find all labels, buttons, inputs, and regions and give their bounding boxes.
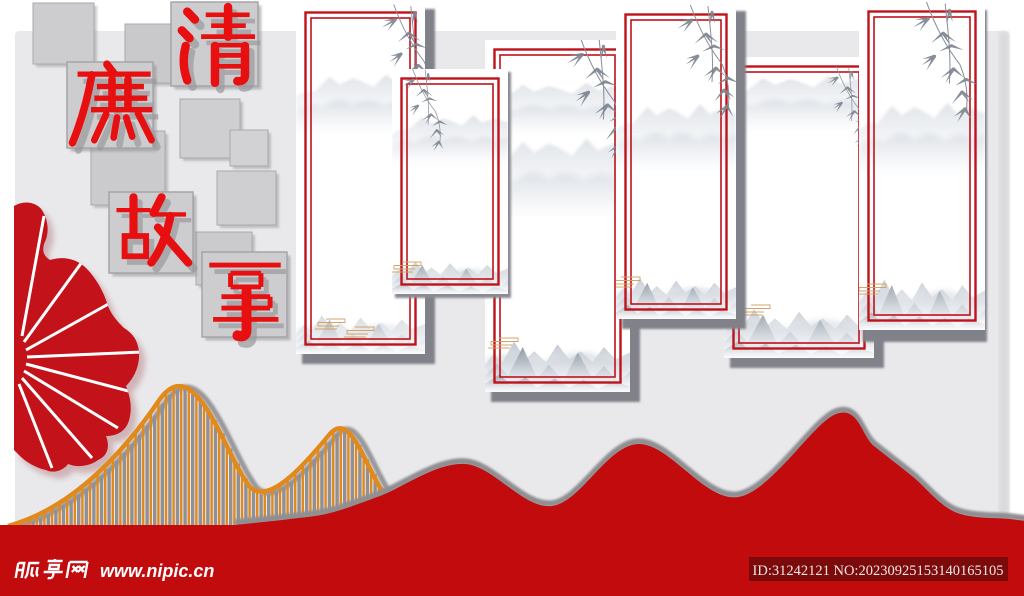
svg-text:www.nipic.cn: www.nipic.cn xyxy=(100,561,214,581)
svg-text:ID:31242121 NO:202309251531401: ID:31242121 NO:20230925153140165105 xyxy=(753,563,1004,579)
